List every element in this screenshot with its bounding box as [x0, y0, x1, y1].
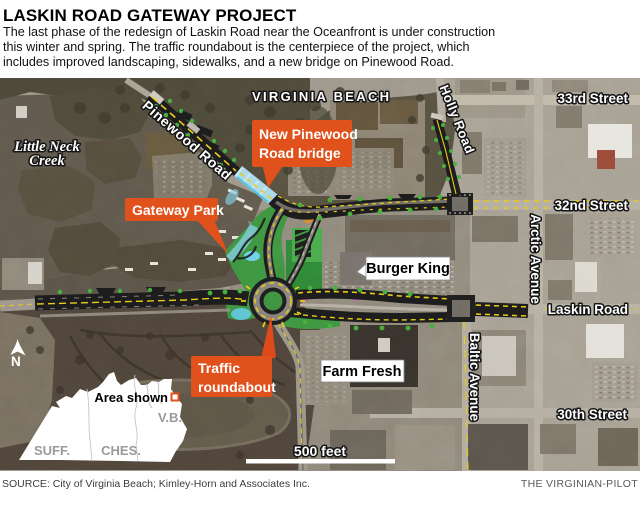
svg-text:Traffic: Traffic [198, 360, 240, 376]
svg-text:LASKIN ROAD GATEWAY PROJECT: LASKIN ROAD GATEWAY PROJECT [3, 6, 297, 25]
svg-text:Laskin Road: Laskin Road [548, 302, 628, 317]
svg-text:CHES.: CHES. [101, 443, 141, 458]
svg-text:30th Street: 30th Street [557, 407, 627, 422]
svg-text:includes improved landscaping,: includes improved landscaping, sidewalks… [3, 55, 454, 69]
svg-text:N: N [11, 354, 21, 369]
svg-text:roundabout: roundabout [198, 379, 276, 395]
svg-text:Creek: Creek [29, 153, 65, 169]
svg-text:New Pinewood: New Pinewood [259, 126, 358, 142]
svg-text:Burger King: Burger King [366, 261, 450, 277]
svg-text:VIRGINIA BEACH: VIRGINIA BEACH [252, 89, 391, 104]
svg-text:Area shown: Area shown [94, 390, 168, 405]
svg-text:Arctic Avenue: Arctic Avenue [528, 214, 543, 304]
svg-text:Baltic Avenue: Baltic Avenue [467, 333, 482, 422]
svg-text:500 feet: 500 feet [294, 443, 346, 459]
svg-text:The last phase of the redesign: The last phase of the redesign of Laskin… [3, 25, 495, 39]
svg-text:SOURCE: City of Virginia Beach: SOURCE: City of Virginia Beach; Kimley-H… [2, 478, 310, 490]
svg-text:33rd Street: 33rd Street [557, 91, 628, 106]
svg-text:V.B.: V.B. [158, 410, 182, 425]
svg-text:Gateway Park: Gateway Park [132, 202, 224, 218]
svg-text:this winter and spring. The tr: this winter and spring. The traffic roun… [3, 40, 469, 54]
svg-text:Farm Fresh: Farm Fresh [323, 364, 402, 380]
svg-text:Road bridge: Road bridge [259, 145, 341, 161]
svg-text:32nd Street: 32nd Street [554, 198, 628, 213]
svg-text:THE VIRGINIAN-PILOT: THE VIRGINIAN-PILOT [521, 478, 638, 490]
svg-text:SUFF.: SUFF. [34, 443, 70, 458]
